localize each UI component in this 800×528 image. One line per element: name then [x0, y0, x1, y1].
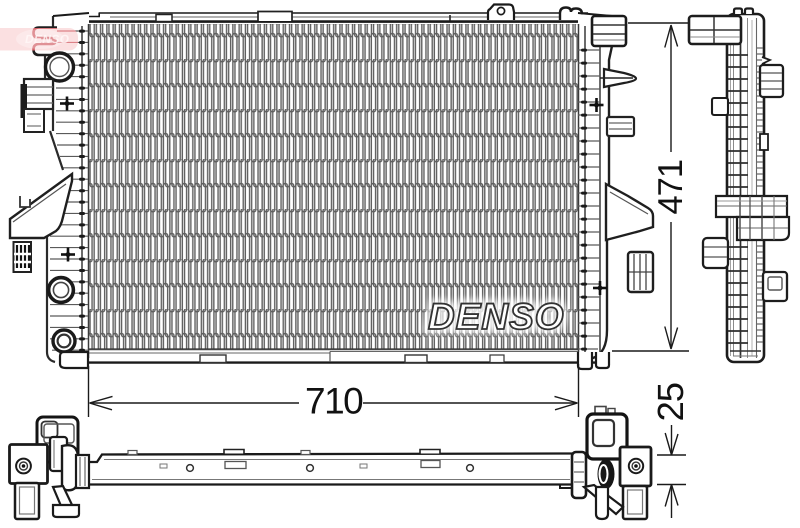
svg-text:DENSO: DENSO	[25, 32, 69, 46]
svg-text:710: 710	[305, 381, 363, 422]
svg-text:25: 25	[650, 383, 691, 422]
svg-text:471: 471	[652, 160, 690, 215]
svg-text:DENSO: DENSO	[428, 296, 565, 337]
